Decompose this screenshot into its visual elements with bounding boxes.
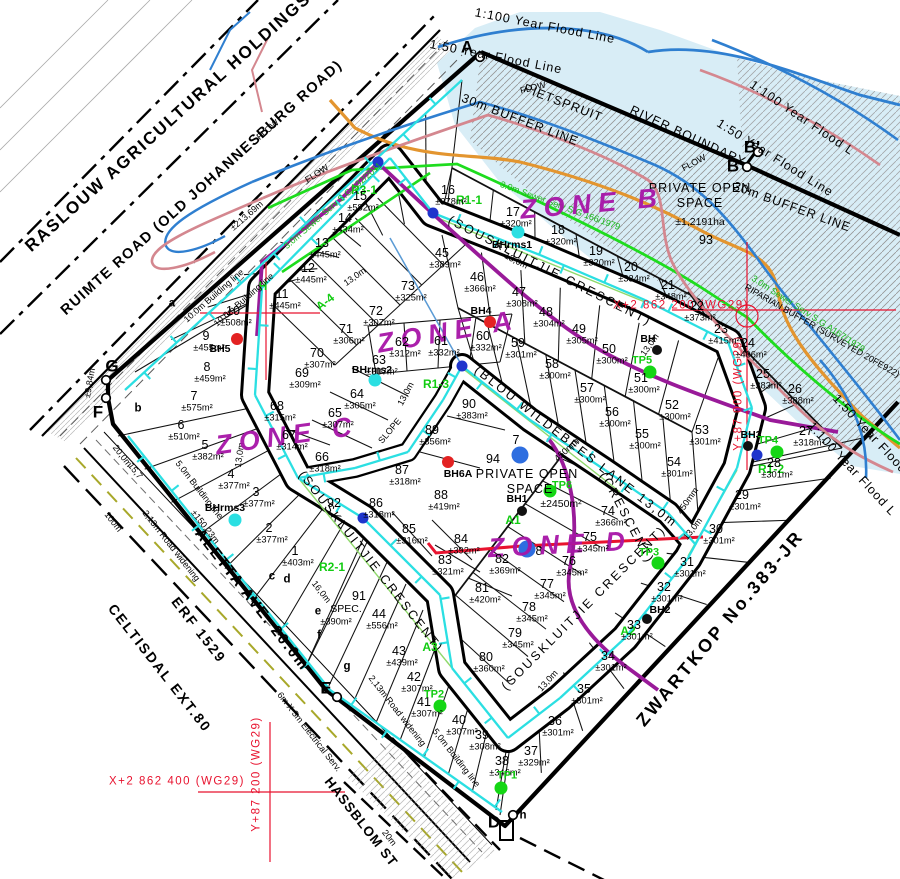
- survey-beacon: [754, 148, 763, 157]
- borehole-marker: [484, 316, 496, 328]
- junction-node-marker: [358, 513, 369, 524]
- trial-pit-marker: [434, 700, 447, 713]
- junction-node-marker: [373, 157, 384, 168]
- borehole-marker: [512, 226, 525, 239]
- map-canvas: [0, 0, 900, 879]
- borehole-marker: [442, 456, 454, 468]
- borehole-marker: [517, 506, 527, 516]
- monitor-well-marker: [519, 541, 536, 558]
- junction-node-marker: [457, 361, 468, 372]
- borehole-marker: [369, 374, 382, 387]
- borehole-marker: [743, 441, 753, 451]
- survey-beacon: [476, 53, 485, 62]
- trial-pit-marker: [652, 557, 665, 570]
- survey-beacon: [509, 811, 518, 820]
- monitor-well-marker: [512, 447, 529, 464]
- survey-beacon: [743, 163, 752, 172]
- trial-pit-marker: [771, 446, 784, 459]
- trial-pit-marker: [495, 782, 508, 795]
- borehole-marker: [229, 514, 242, 527]
- borehole-marker: [642, 614, 652, 624]
- survey-beacon: [102, 394, 111, 403]
- junction-node-marker: [428, 208, 439, 219]
- trial-pit-marker: [644, 366, 657, 379]
- survey-beacon: [102, 376, 111, 385]
- borehole-marker: [652, 345, 662, 355]
- junction-node-marker: [752, 450, 763, 461]
- trial-pit-marker: [544, 485, 557, 498]
- borehole-marker: [231, 333, 243, 345]
- survey-beacon: [333, 693, 342, 702]
- cadastral-map-page: RASLOUW AGRICULTURAL HOLDINGS RUIMTE ROA…: [0, 0, 900, 879]
